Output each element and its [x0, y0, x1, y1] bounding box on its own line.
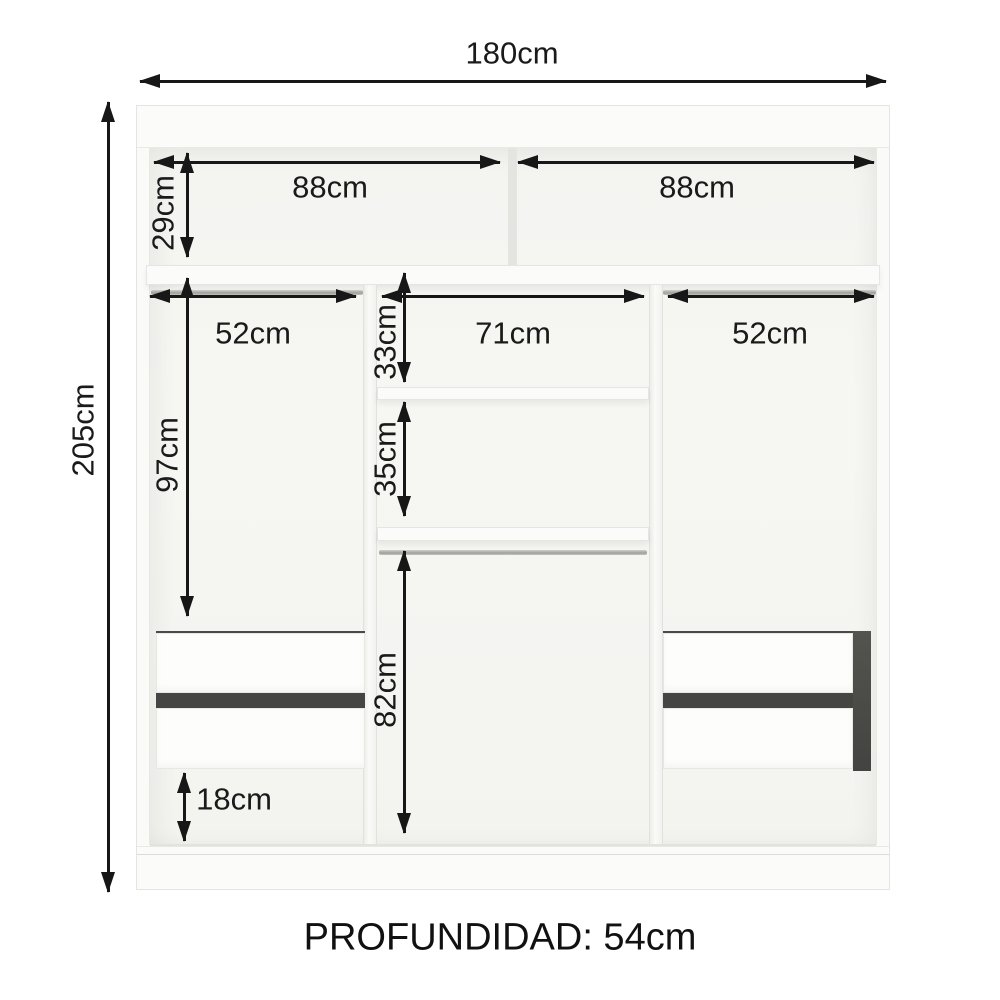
- drawer-left-upper: [156, 633, 365, 693]
- overall-height-arrow-icon: [107, 102, 110, 892]
- wardrobe-base-plinth: [137, 846, 889, 889]
- drawer-right-gap: [663, 693, 853, 708]
- hanging-rod-middle: [379, 550, 647, 555]
- top-shelf-height-label: 29cm: [148, 175, 179, 251]
- middle-hanging-height-arrow-icon: [403, 551, 406, 833]
- wardrobe-right-side-panel: [876, 148, 889, 845]
- drawer-left-gap: [156, 693, 365, 708]
- drawer-right-open-shadow: [853, 631, 871, 771]
- overall-width-arrow-icon: [140, 80, 886, 83]
- middle-shelf-lower: [377, 527, 649, 541]
- drawer-right-lower: [663, 708, 853, 769]
- left-hanging-height-label: 97cm: [152, 417, 183, 493]
- drawer-right-upper: [663, 633, 853, 693]
- drawer-left-lower: [156, 708, 365, 769]
- top-compartment-shelf: [146, 265, 880, 285]
- wardrobe-top-panel: [137, 106, 889, 148]
- middle-lower-shelf-height-label: 35cm: [370, 421, 401, 497]
- middle-section-width-arrow-icon: [382, 295, 644, 298]
- right-vertical-divider: [649, 285, 663, 845]
- wardrobe-base-seam: [137, 854, 889, 855]
- bottom-compartment-height-arrow-icon: [183, 773, 186, 841]
- middle-hanging-height-label: 82cm: [370, 652, 401, 728]
- middle-upper-shelf-height-label: 33cm: [370, 304, 401, 380]
- wardrobe-body: [136, 105, 890, 890]
- wardrobe-dimension-diagram: 180cm 205cm 88cm 88cm 29cm 52cm 71cm 52c…: [0, 0, 1000, 1000]
- top-shelf-left-width-arrow-icon: [154, 161, 500, 164]
- drawer-unit-right: [663, 631, 871, 771]
- wardrobe-left-side-panel: [137, 148, 150, 845]
- depth-caption: PROFUNDIDAD: 54cm: [304, 917, 697, 960]
- middle-lower-shelf-height-arrow-icon: [403, 402, 406, 516]
- middle-upper-shelf-height-arrow-icon: [403, 273, 406, 382]
- overall-height-label: 205cm: [68, 383, 99, 476]
- middle-shelf-upper: [377, 387, 649, 400]
- middle-section-width-label: 71cm: [475, 318, 551, 349]
- top-shelf-left-width-label: 88cm: [292, 172, 368, 203]
- overall-width-label: 180cm: [465, 38, 558, 69]
- right-section-width-arrow-icon: [668, 295, 874, 298]
- left-section-width-label: 52cm: [215, 318, 291, 349]
- left-hanging-height-arrow-icon: [186, 278, 189, 616]
- top-shelf-right-width-arrow-icon: [518, 161, 874, 164]
- right-section-width-label: 52cm: [732, 318, 808, 349]
- bottom-compartment-height-label: 18cm: [196, 784, 272, 815]
- drawer-unit-left: [156, 631, 365, 771]
- top-shelf-right-width-label: 88cm: [659, 172, 735, 203]
- top-compartment-center-divider: [508, 148, 517, 265]
- top-shelf-height-arrow-icon: [186, 153, 189, 257]
